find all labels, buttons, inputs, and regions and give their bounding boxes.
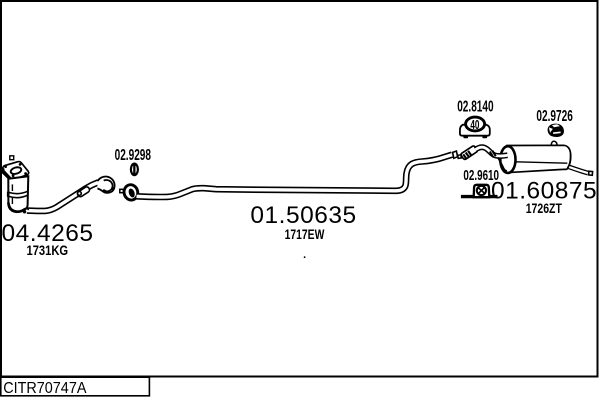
svg-text:40: 40 xyxy=(470,118,479,132)
svg-text:01.50635: 01.50635 xyxy=(250,202,356,229)
svg-text:02.9726: 02.9726 xyxy=(536,107,572,125)
svg-text:1726ZT: 1726ZT xyxy=(526,200,563,216)
svg-text:CITR70747A: CITR70747A xyxy=(3,379,87,397)
svg-text:02.8140: 02.8140 xyxy=(457,97,493,115)
svg-text:1731KG: 1731KG xyxy=(26,243,68,258)
svg-text:02.9298: 02.9298 xyxy=(115,146,151,164)
svg-text:1717EW: 1717EW xyxy=(285,227,325,243)
